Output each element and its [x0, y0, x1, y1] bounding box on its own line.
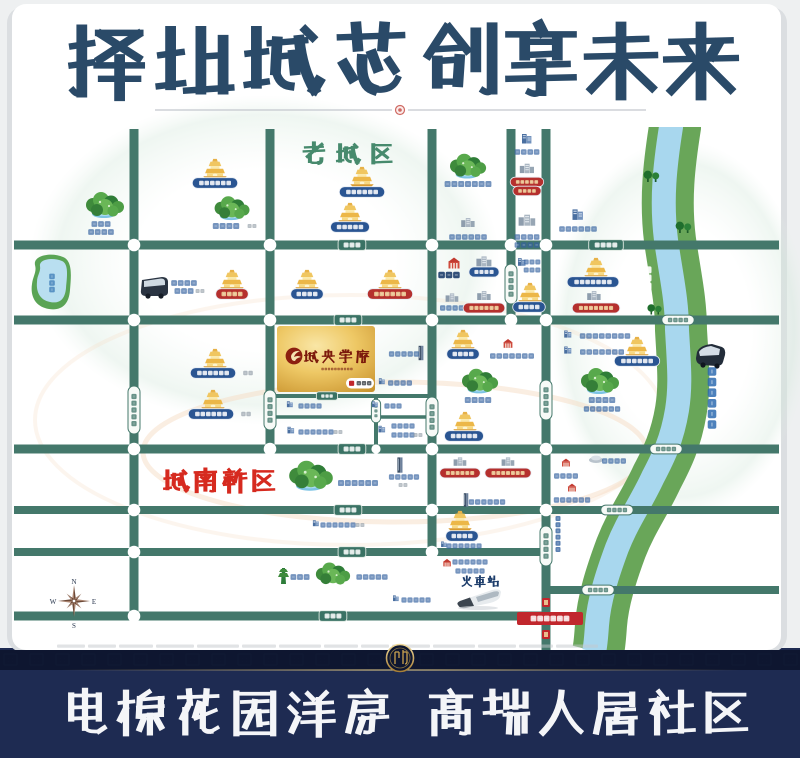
svg-text:S: S [72, 622, 76, 630]
svg-text:N: N [71, 578, 76, 586]
svg-text:W: W [50, 598, 57, 606]
svg-text:E: E [92, 598, 96, 606]
